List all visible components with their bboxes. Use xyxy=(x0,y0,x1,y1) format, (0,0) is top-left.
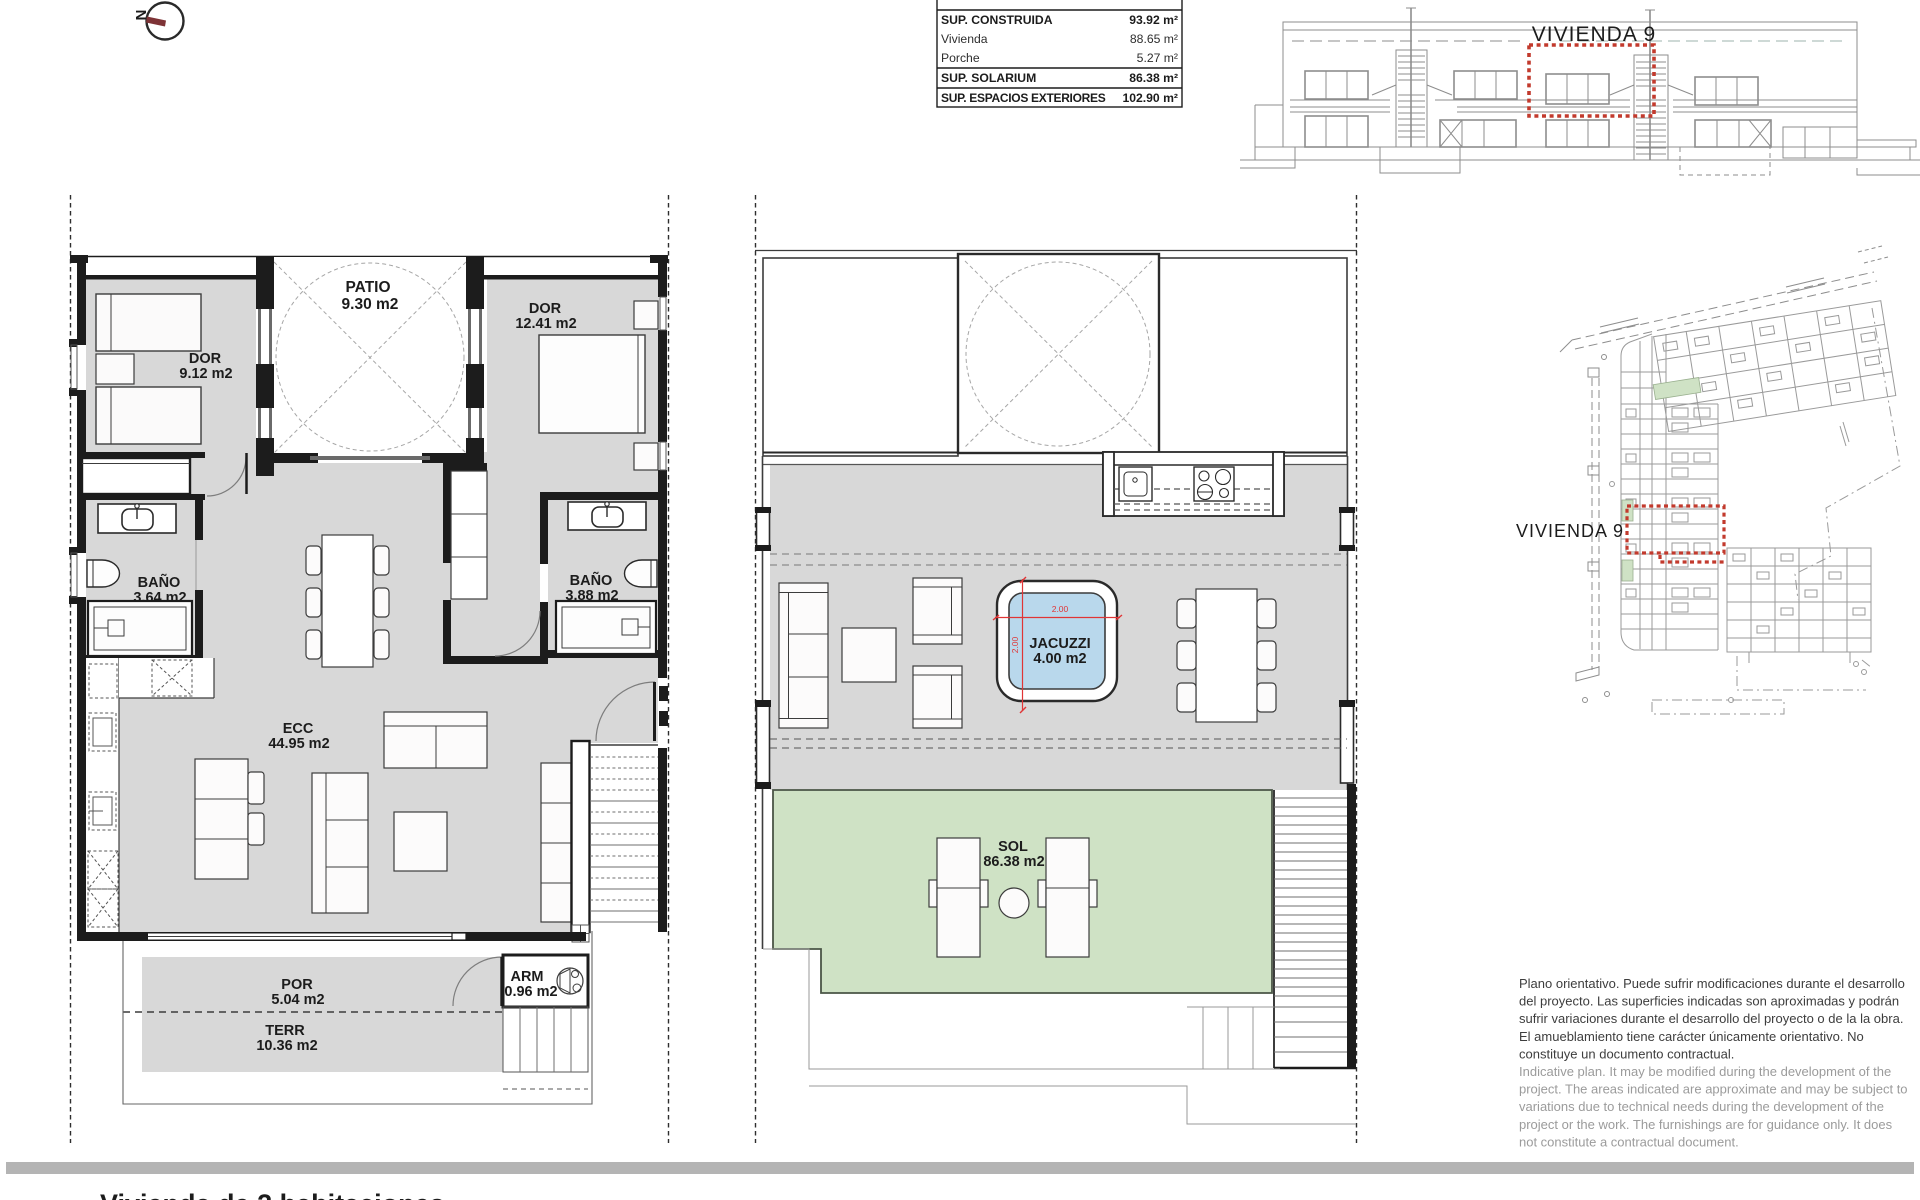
svg-text:sufrir variaciones durante el: sufrir variaciones durante el desarrollo… xyxy=(1519,1011,1903,1026)
svg-text:0.96 m2: 0.96 m2 xyxy=(504,984,557,1000)
svg-text:Indicative plan. It may be mod: Indicative plan. It may be modified duri… xyxy=(1519,1064,1891,1079)
svg-text:JACUZZI: JACUZZI xyxy=(1029,636,1090,652)
svg-text:ARM: ARM xyxy=(510,969,543,985)
svg-text:project or the work. The furni: project or the work. The furnishings are… xyxy=(1519,1117,1893,1132)
svg-text:88.65 m²: 88.65 m² xyxy=(1130,32,1178,46)
svg-text:3.88 m2: 3.88 m2 xyxy=(565,588,618,604)
svg-text:5.27 m²: 5.27 m² xyxy=(1137,51,1178,65)
svg-text:del proyecto. Las superficies: del proyecto. Las superficies indicadas … xyxy=(1519,994,1899,1009)
svg-text:102.90 m²: 102.90 m² xyxy=(1122,91,1178,105)
svg-text:44.95 m2: 44.95 m2 xyxy=(268,736,329,752)
svg-text:86.38 m²: 86.38 m² xyxy=(1129,71,1178,85)
svg-text:BAÑO: BAÑO xyxy=(138,573,181,591)
svg-text:3.64 m2: 3.64 m2 xyxy=(133,590,186,606)
svg-text:2.00: 2.00 xyxy=(1010,636,1020,653)
svg-text:PATIO: PATIO xyxy=(345,279,390,296)
svg-text:project. The areas indicated a: project. The areas indicated are approxi… xyxy=(1519,1082,1908,1097)
svg-text:N: N xyxy=(132,10,149,21)
svg-text:5.04 m2: 5.04 m2 xyxy=(271,992,324,1008)
svg-text:VIVIENDA 9: VIVIENDA 9 xyxy=(1532,23,1656,46)
svg-text:VIVIENDA 9: VIVIENDA 9 xyxy=(1516,521,1624,541)
svg-text:10.36 m2: 10.36 m2 xyxy=(256,1038,317,1054)
svg-text:12.41 m2: 12.41 m2 xyxy=(515,316,576,332)
svg-text:9.30 m2: 9.30 m2 xyxy=(342,296,399,313)
svg-text:POR: POR xyxy=(281,977,313,993)
svg-text:El amueblamiento tiene carácte: El amueblamiento tiene carácter únicamen… xyxy=(1519,1029,1864,1044)
svg-text:SOL: SOL xyxy=(998,839,1028,855)
svg-text:93.92 m²: 93.92 m² xyxy=(1129,13,1178,27)
svg-text:DOR: DOR xyxy=(529,301,562,317)
svg-text:constituye un documento contra: constituye un documento contractual. xyxy=(1519,1046,1734,1061)
svg-text:SUP. SOLARIUM: SUP. SOLARIUM xyxy=(941,71,1036,85)
svg-text:ECC: ECC xyxy=(283,721,314,737)
svg-text:4.00 m2: 4.00 m2 xyxy=(1033,651,1086,667)
svg-text:not constitute a contractual d: not constitute a contractual document. xyxy=(1519,1134,1739,1149)
svg-text:Vivienda: Vivienda xyxy=(941,32,988,46)
svg-text:2.00: 2.00 xyxy=(1052,604,1069,614)
svg-text:SUP. CONSTRUIDA: SUP. CONSTRUIDA xyxy=(941,13,1053,27)
svg-text:DOR: DOR xyxy=(189,351,222,367)
svg-text:variations due to technical ne: variations due to technical needs during… xyxy=(1519,1099,1884,1114)
svg-text:SUP. ESPACIOS EXTERIORES: SUP. ESPACIOS EXTERIORES xyxy=(941,91,1106,105)
svg-text:86.38 m2: 86.38 m2 xyxy=(983,854,1044,870)
svg-text:Vivienda de 2 habitaciones: Vivienda de 2 habitaciones xyxy=(100,1189,445,1200)
svg-text:Porche: Porche xyxy=(941,51,980,65)
svg-text:BAÑO: BAÑO xyxy=(570,571,613,589)
svg-text:TERR: TERR xyxy=(265,1023,305,1039)
svg-text:Plano orientativo. Puede sufri: Plano orientativo. Puede sufrir modifica… xyxy=(1519,976,1905,991)
svg-text:9.12 m2: 9.12 m2 xyxy=(179,366,232,382)
